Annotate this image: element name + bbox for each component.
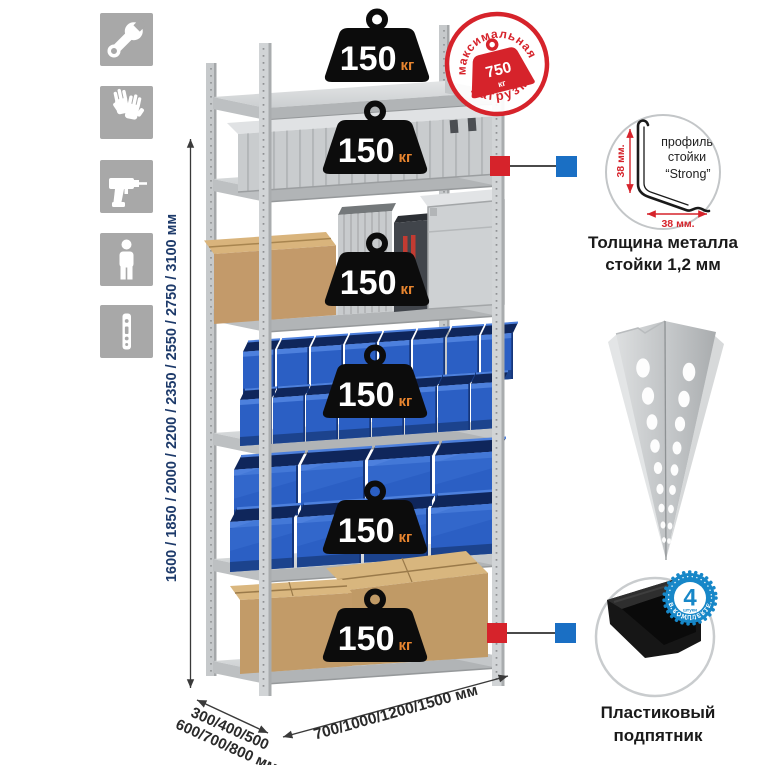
- svg-text:профиль: профиль: [661, 135, 713, 149]
- callout-top: [490, 156, 577, 177]
- plastic-foot-detail-circle: 4 штуки В КОМПЛЕКТЕ: [596, 572, 716, 696]
- plastic-foot-caption-line2: подпятник: [614, 726, 703, 745]
- load-badge-1: 150кг: [325, 12, 429, 83]
- metal-thickness-caption-line2: стойки 1,2 мм: [605, 255, 721, 274]
- width-dimension: 700/1000/1200/1500 мм: [283, 676, 508, 743]
- aluminum-box-large: [420, 189, 504, 309]
- depth-dimension: 300/400/500 600/700/800 мм: [173, 700, 287, 765]
- height-dimension-label: 1600 / 1850 / 2000 / 2200 / 2350 / 2550 …: [164, 214, 180, 582]
- svg-text:38 мм.: 38 мм.: [615, 144, 627, 177]
- callout-bottom-blue-square: [555, 623, 576, 643]
- metal-thickness-caption-line1: Толщина металла: [588, 233, 738, 252]
- plastic-foot-caption-line1: Пластиковый: [601, 703, 716, 722]
- width-dimension-label: 700/1000/1200/1500 мм: [312, 682, 480, 744]
- svg-text:штуки: штуки: [683, 608, 697, 613]
- svg-text:стойки: стойки: [668, 150, 706, 164]
- rack-illustration: 1600 / 1850 / 2000 / 2200 / 2350 / 2550 …: [0, 0, 765, 765]
- product-infographic: 1600 / 1850 / 2000 / 2200 / 2350 / 2550 …: [0, 0, 765, 765]
- angle-post-image: [608, 321, 724, 560]
- callout-top-red-square: [490, 156, 510, 176]
- callout-bottom-red-square: [487, 623, 507, 643]
- svg-text:“Strong”: “Strong”: [665, 167, 710, 181]
- callout-bottom: [487, 623, 576, 643]
- svg-text:38 мм.: 38 мм.: [661, 218, 694, 230]
- callout-top-blue-square: [556, 156, 577, 177]
- post-profile-detail-circle: 38 мм. 38 мм. профиль стойки “Strong”: [606, 115, 720, 230]
